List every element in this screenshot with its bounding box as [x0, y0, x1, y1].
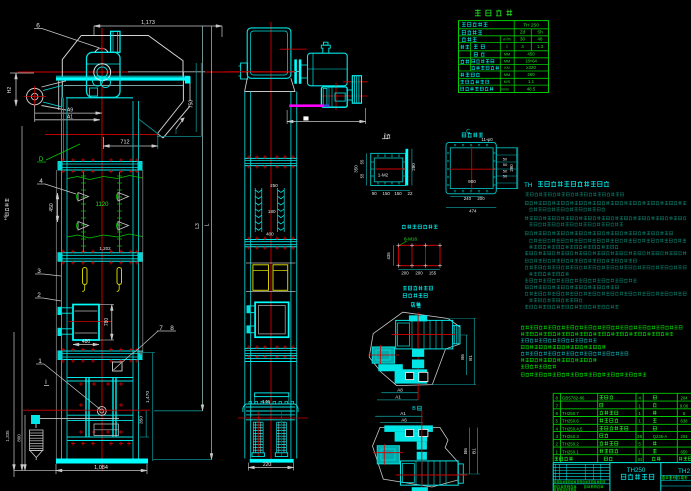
svg-text:240: 240	[464, 196, 472, 201]
svg-text:≥320: ≥320	[526, 65, 536, 70]
svg-text:5: 5	[556, 419, 559, 424]
svg-text:260: 260	[527, 72, 535, 77]
svg-text:3: 3	[556, 434, 559, 439]
svg-text:50: 50	[503, 174, 508, 179]
svg-text:MM: MM	[504, 73, 510, 77]
svg-text:A6: A6	[401, 417, 407, 422]
svg-text:1: 1	[638, 419, 641, 424]
svg-text:50: 50	[503, 162, 508, 167]
svg-text:480: 480	[82, 339, 91, 345]
svg-text:9.06: 9.06	[680, 403, 689, 408]
svg-text:800: 800	[17, 434, 22, 442]
svg-text:TH: TH	[524, 182, 533, 189]
svg-text:350: 350	[354, 165, 359, 173]
svg-text:MM: MM	[504, 59, 510, 63]
svg-text:204: 204	[681, 434, 689, 439]
svg-text:36: 36	[637, 434, 643, 439]
svg-text:22: 22	[408, 191, 413, 196]
svg-text:5: 5	[638, 442, 641, 447]
svg-text:1,470: 1,470	[145, 391, 151, 403]
svg-text:1120: 1120	[96, 202, 110, 208]
svg-text:1-M2: 1-M2	[378, 173, 389, 178]
svg-text:1: 1	[638, 403, 641, 408]
svg-text:C: C	[466, 129, 470, 135]
svg-text:435: 435	[386, 252, 391, 260]
svg-text:B1: B1	[468, 355, 473, 361]
svg-text:712: 712	[120, 140, 129, 146]
svg-text:l: l	[507, 44, 508, 49]
svg-text:150: 150	[394, 191, 402, 196]
svg-text:204: 204	[681, 396, 689, 401]
svg-text:KN: KN	[504, 66, 510, 70]
svg-text:200: 200	[401, 271, 409, 276]
svg-text:220: 220	[263, 462, 272, 468]
svg-text:8: 8	[556, 396, 559, 401]
svg-text:TH250.3: TH250.3	[562, 434, 579, 439]
svg-text:2: 2	[556, 442, 559, 447]
svg-text:TH250.4,5: TH250.4,5	[562, 427, 583, 432]
svg-text:48.5: 48.5	[527, 86, 536, 91]
svg-text:450: 450	[527, 52, 535, 57]
svg-text:GB5782-86: GB5782-86	[562, 396, 585, 401]
svg-text:150: 150	[383, 191, 391, 196]
svg-text:1,202: 1,202	[99, 246, 111, 251]
svg-text:L3: L3	[195, 223, 201, 229]
svg-text:1,335: 1,335	[5, 430, 10, 442]
svg-text:B6: B6	[463, 448, 469, 454]
svg-text:A1: A1	[395, 395, 401, 400]
svg-text:B6: B6	[460, 354, 465, 360]
svg-text:180: 180	[268, 209, 276, 214]
svg-text:1: 1	[556, 449, 559, 454]
svg-text:TH2: TH2	[678, 468, 691, 475]
svg-text:650: 650	[681, 449, 689, 454]
svg-text:TH250.6: TH250.6	[562, 419, 579, 424]
svg-text:4: 4	[638, 396, 641, 401]
svg-text:4: 4	[556, 427, 559, 432]
svg-text:638: 638	[681, 419, 689, 424]
svg-text:A8: A8	[397, 388, 403, 393]
svg-text:A1: A1	[400, 411, 406, 416]
svg-text:H2: H2	[7, 87, 13, 94]
svg-text:m³/h: m³/h	[503, 38, 511, 42]
svg-text:Q235-A: Q235-A	[653, 434, 668, 439]
svg-text:55: 55	[360, 159, 365, 164]
svg-text:1,173: 1,173	[141, 20, 155, 26]
svg-text:TH250: TH250	[627, 467, 646, 474]
svg-text:A1: A1	[67, 114, 73, 120]
svg-text:11-φ0: 11-φ0	[481, 137, 493, 142]
svg-text:750: 750	[189, 100, 195, 109]
svg-text:TH250.2: TH250.2	[562, 442, 579, 447]
svg-text:250: 250	[270, 183, 278, 188]
svg-text:TH250.7: TH250.7	[562, 411, 579, 416]
svg-text:1.1: 1.1	[528, 79, 535, 84]
svg-text:280: 280	[411, 163, 416, 171]
svg-text:18×64: 18×64	[525, 58, 537, 63]
svg-text:1,084: 1,084	[94, 465, 108, 471]
svg-text:6: 6	[556, 411, 559, 416]
svg-text:200: 200	[477, 196, 485, 201]
svg-text:90: 90	[372, 191, 377, 196]
svg-text:200: 200	[415, 271, 423, 276]
svg-text:155: 155	[429, 271, 437, 276]
svg-text:B: B	[412, 406, 416, 412]
svg-text:Sh: Sh	[537, 30, 543, 35]
svg-text:50: 50	[503, 157, 508, 162]
svg-text:780: 780	[104, 318, 110, 327]
svg-text:TH250.1: TH250.1	[562, 449, 579, 454]
svg-text:1: 1	[638, 449, 641, 454]
svg-text:TH 250: TH 250	[523, 23, 539, 29]
svg-text:55: 55	[360, 173, 365, 178]
svg-text:Zd: Zd	[520, 30, 526, 35]
svg-text:A9: A9	[67, 108, 73, 114]
svg-text:A: A	[412, 304, 416, 310]
svg-text:B1: B1	[472, 448, 478, 454]
svg-text:1.3: 1.3	[537, 44, 544, 49]
svg-text:50: 50	[503, 168, 508, 173]
svg-text:8-M16: 8-M16	[404, 237, 417, 242]
svg-text:48: 48	[538, 37, 543, 42]
svg-text:r/min: r/min	[501, 87, 509, 91]
svg-text:350: 350	[139, 416, 145, 424]
svg-text:900: 900	[468, 179, 476, 184]
svg-text:474: 474	[469, 209, 477, 214]
svg-text:7: 7	[556, 403, 559, 408]
svg-text:MM: MM	[504, 53, 510, 57]
svg-text:280: 280	[509, 164, 514, 172]
svg-text:30: 30	[520, 37, 525, 42]
svg-text:1: 1	[638, 411, 641, 416]
svg-text:M/S: M/S	[504, 80, 511, 84]
svg-text:450: 450	[49, 203, 55, 212]
svg-text:400: 400	[266, 232, 274, 237]
svg-text:L: L	[205, 223, 211, 226]
